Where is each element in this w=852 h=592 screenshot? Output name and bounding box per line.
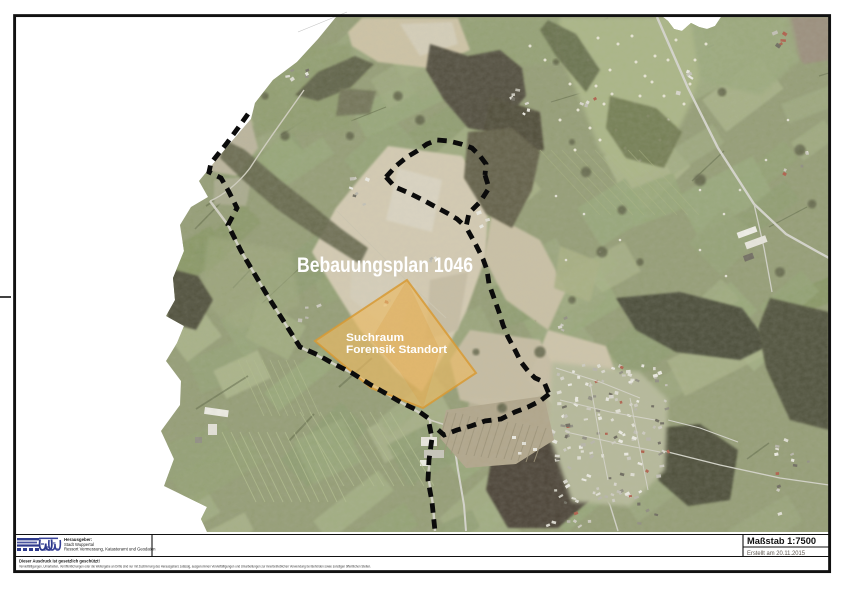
- svg-text:Suchraum: Suchraum: [346, 332, 404, 344]
- svg-text:Vervielfältigungen, Umarbeiten: Vervielfältigungen, Umarbeiten, Veröffen…: [19, 565, 371, 569]
- svg-text:Maßstab 1:7500: Maßstab 1:7500: [747, 535, 816, 546]
- svg-text:Bebauungsplan 1046: Bebauungsplan 1046: [297, 253, 473, 277]
- svg-text:Ressort Vermessung, Katasteram: Ressort Vermessung, Katasteramt und Geod…: [64, 547, 156, 552]
- svg-text:Erstellt am 20.11.2015: Erstellt am 20.11.2015: [747, 550, 806, 557]
- svg-text:Forensik Standort: Forensik Standort: [346, 344, 447, 356]
- svg-text:Dieser Ausdruck ist gesetzlich: Dieser Ausdruck ist gesetzlich geschützt…: [19, 559, 100, 564]
